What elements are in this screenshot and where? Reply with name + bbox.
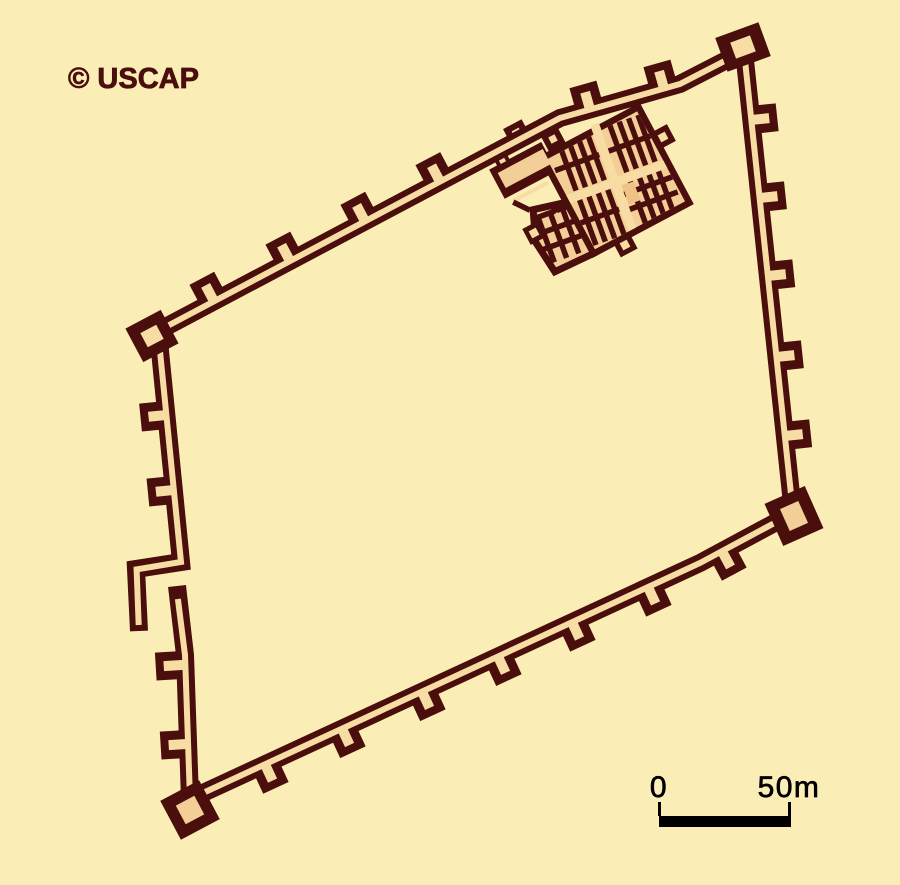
svg-text:© USCAP: © USCAP <box>68 63 199 95</box>
svg-text:50m: 50m <box>758 771 821 804</box>
svg-text:0: 0 <box>650 771 668 804</box>
